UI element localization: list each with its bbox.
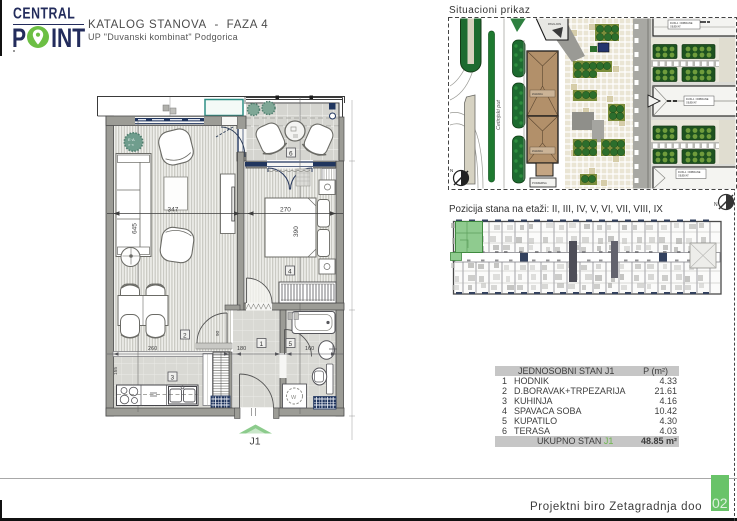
- svg-text:180: 180: [237, 346, 246, 352]
- svg-text:645: 645: [132, 223, 139, 234]
- svg-text:OBJEKAT: OBJEKAT: [670, 26, 681, 29]
- svg-text:Pozicija stana na etaži: II, I: Pozicija stana na etaži: II, III, IV, V,…: [449, 204, 663, 215]
- svg-text:1: 1: [260, 341, 264, 348]
- svg-text:5: 5: [289, 341, 293, 348]
- svg-text:260: 260: [148, 346, 157, 352]
- svg-text:6: 6: [289, 150, 293, 157]
- svg-text:ZGRADA: ZGRADA: [532, 92, 543, 96]
- svg-text:OBJEKAT: OBJEKAT: [678, 175, 689, 178]
- svg-text:PODZEMNA: PODZEMNA: [532, 181, 547, 185]
- svg-text:2: 2: [183, 332, 187, 339]
- svg-text:Situacioni prikaz: Situacioni prikaz: [449, 5, 530, 16]
- svg-text:347: 347: [168, 207, 179, 214]
- svg-text:155: 155: [113, 367, 119, 375]
- svg-text:DUKLJ. ODBRANE: DUKLJ. ODBRANE: [686, 97, 709, 101]
- svg-text:270: 270: [280, 207, 291, 214]
- svg-text:J1: J1: [250, 436, 261, 448]
- svg-text:DUKLJ. ODBRANE: DUKLJ. ODBRANE: [678, 170, 701, 174]
- svg-text:4: 4: [288, 268, 292, 275]
- svg-text:Cetinjski put: Cetinjski put: [496, 100, 502, 130]
- svg-text:OBJEKAT: OBJEKAT: [686, 102, 697, 105]
- svg-text:DUKLJ. ODBRANE: DUKLJ. ODBRANE: [670, 21, 693, 25]
- svg-text:×·×: ×·×: [128, 142, 135, 147]
- svg-text:W: W: [291, 395, 297, 401]
- svg-text:160: 160: [305, 346, 314, 352]
- svg-text:N: N: [450, 168, 453, 173]
- svg-text:390: 390: [293, 226, 300, 237]
- svg-text:3: 3: [171, 374, 175, 381]
- svg-text:PAVILJON: PAVILJON: [548, 22, 561, 26]
- svg-text:N: N: [714, 202, 718, 208]
- svg-text:ZGRADA: ZGRADA: [532, 149, 543, 153]
- svg-text:90: 90: [215, 330, 221, 336]
